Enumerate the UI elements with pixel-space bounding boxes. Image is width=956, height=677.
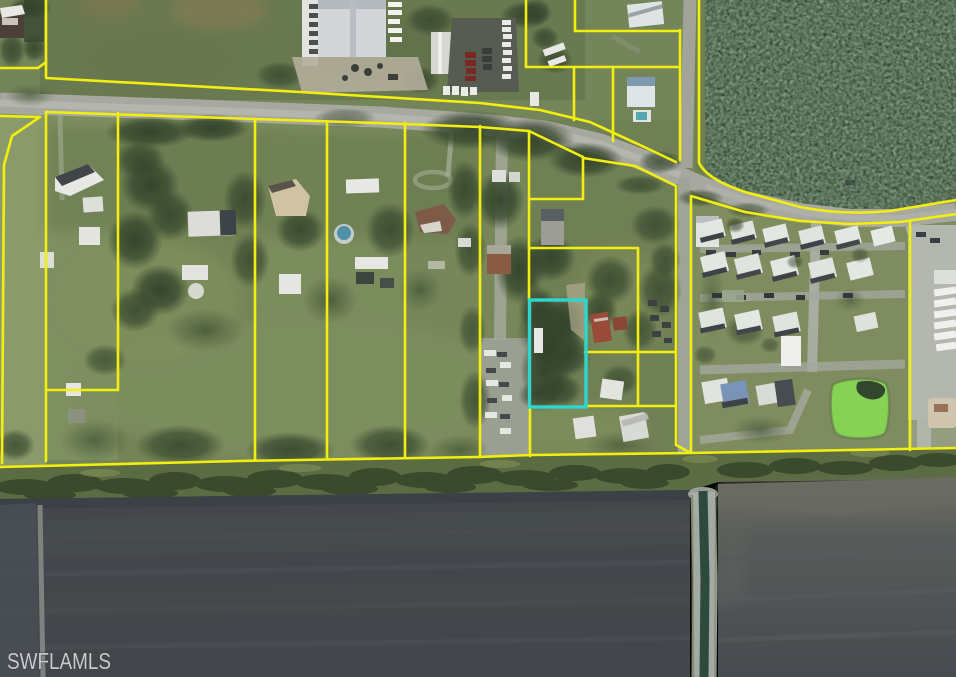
svg-text:SWFLAMLS: SWFLAMLS xyxy=(7,648,111,674)
